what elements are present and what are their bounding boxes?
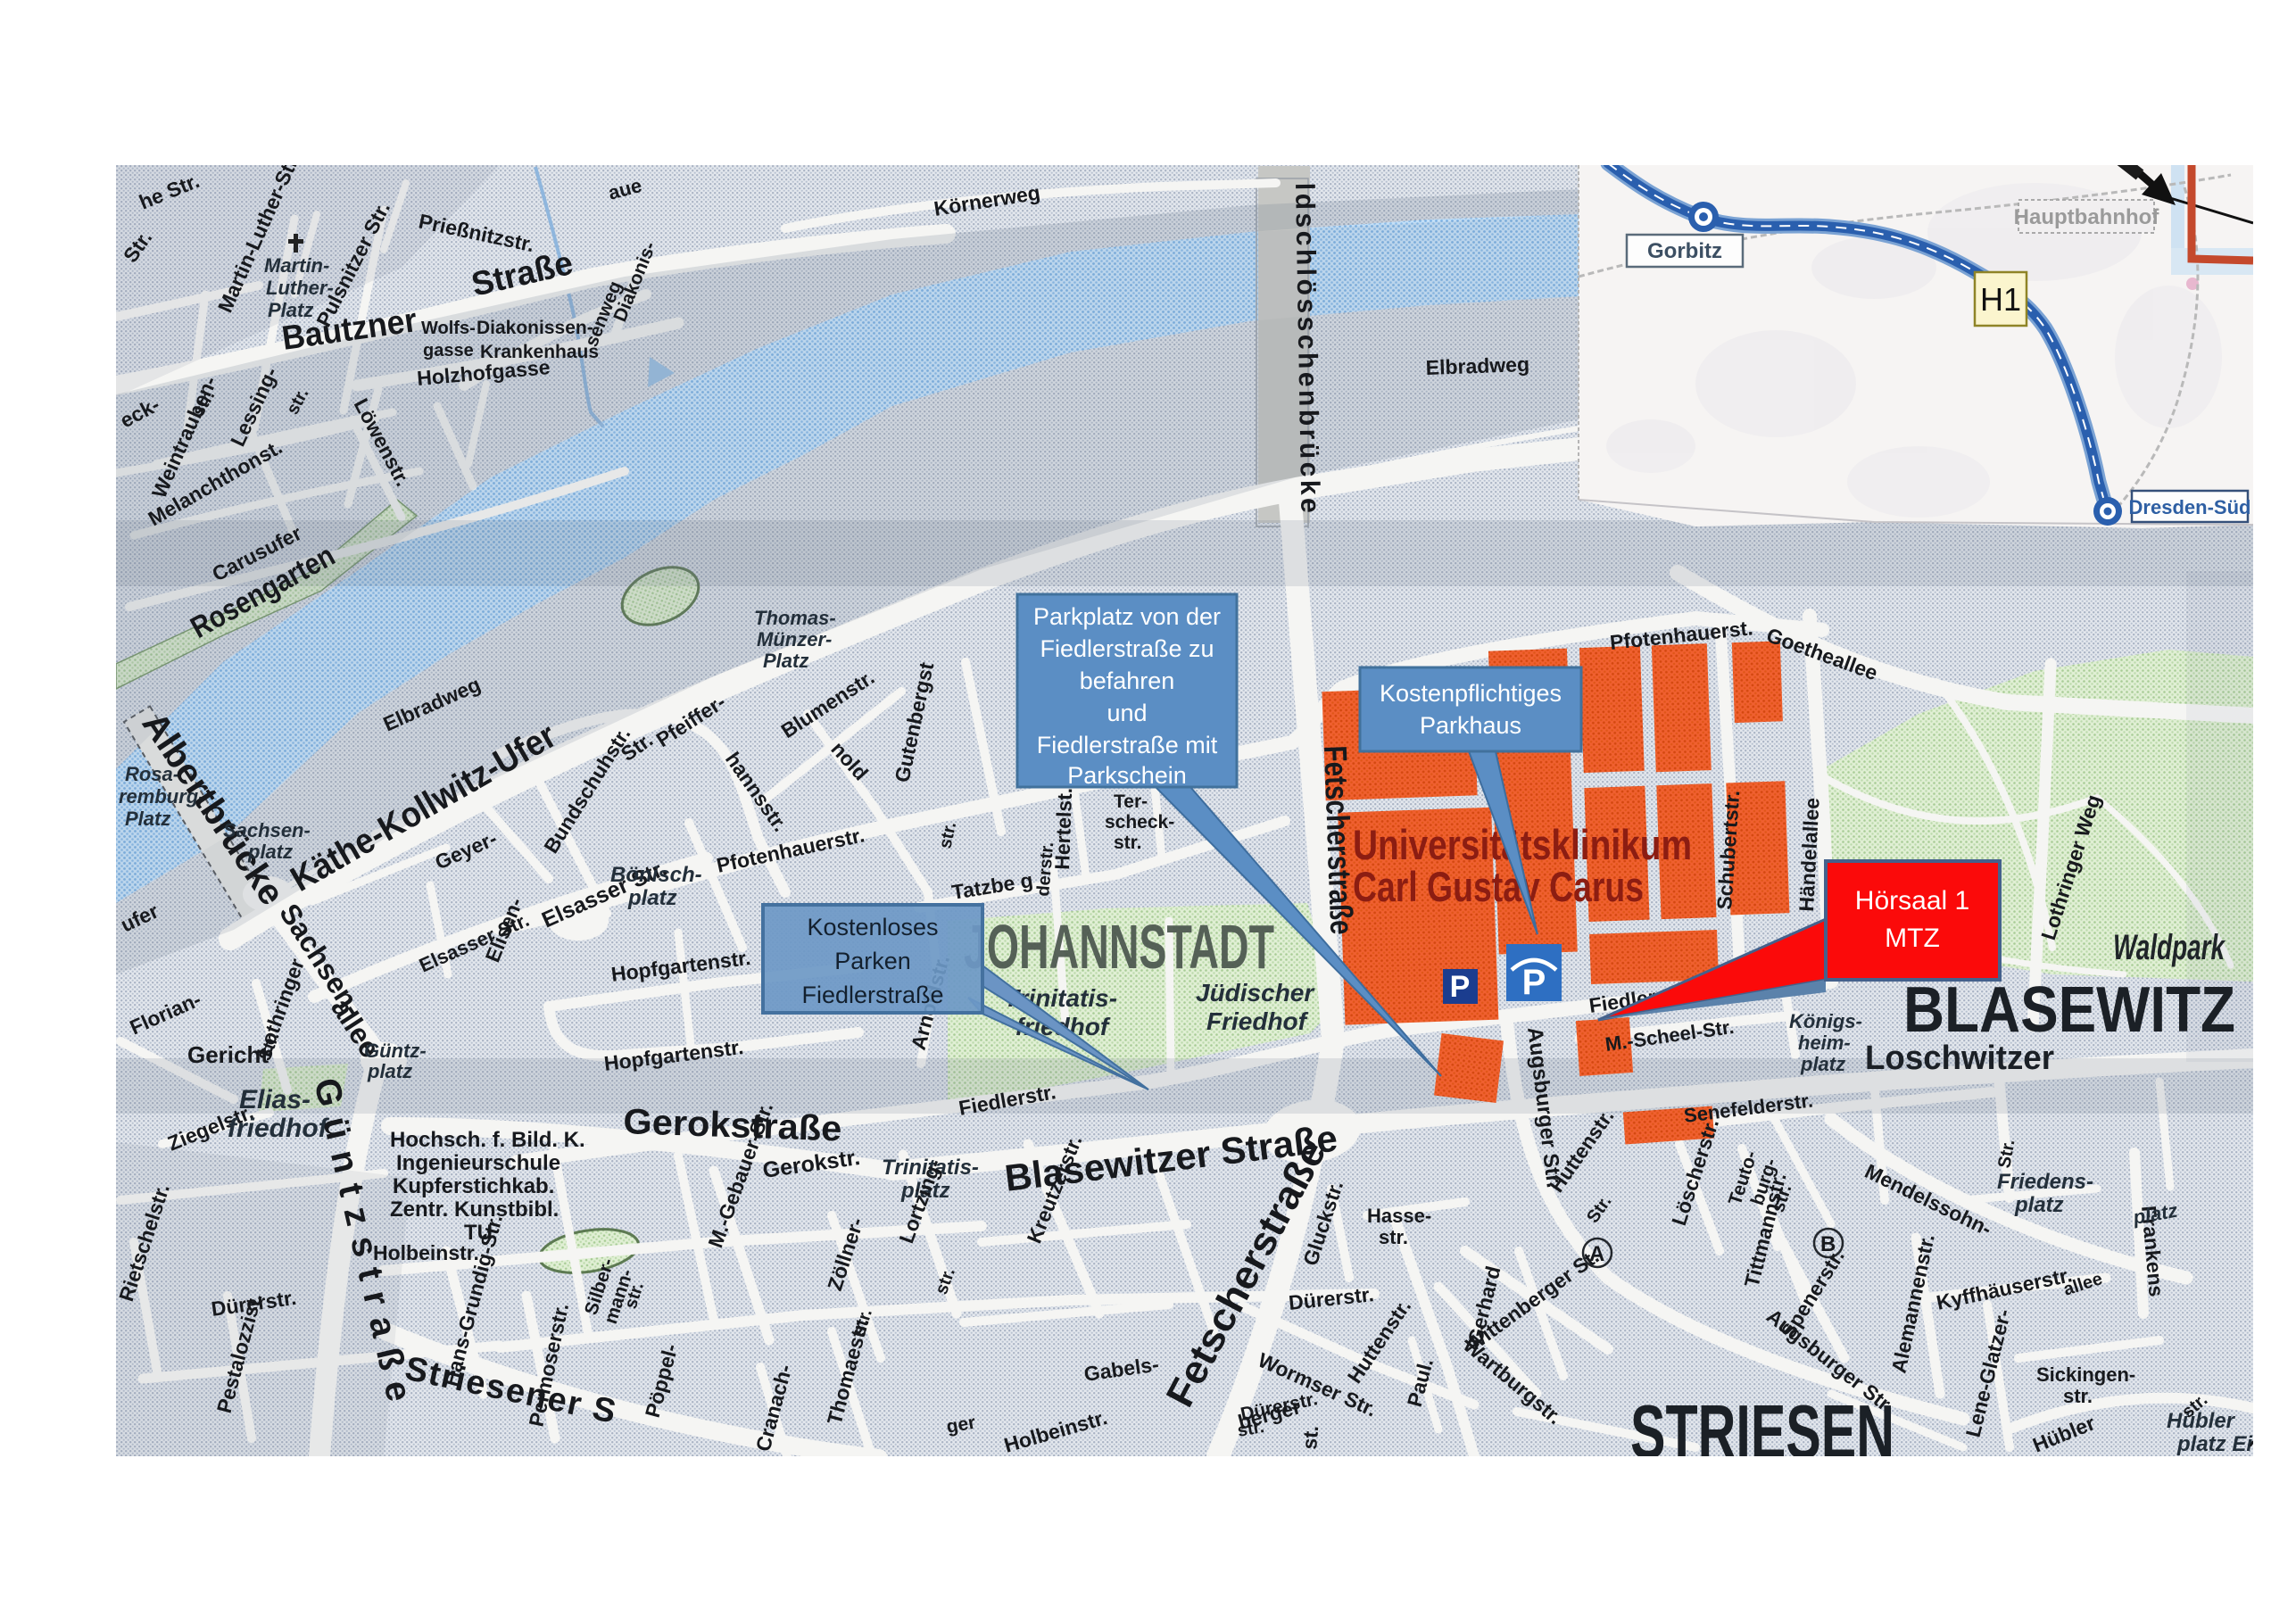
svg-text:Kupferstichkab.: Kupferstichkab. <box>393 1174 554 1198</box>
svg-text:Sickingen-: Sickingen- <box>2036 1363 2135 1386</box>
svg-text:Münzer-: Münzer- <box>757 628 832 650</box>
svg-text:Friedens-: Friedens- <box>1997 1170 2093 1194</box>
svg-text:platz Ei: platz Ei <box>2176 1432 2253 1456</box>
svg-text:Loschwitzer: Loschwitzer <box>1865 1040 2054 1077</box>
svg-text:Güntz-: Güntz- <box>364 1040 427 1062</box>
svg-text:JOHANNSTADT: JOHANNSTADT <box>964 912 1274 982</box>
svg-text:P: P <box>1450 970 1471 1004</box>
svg-text:Hochsch. f. Bild. K.: Hochsch. f. Bild. K. <box>390 1128 585 1152</box>
svg-text:Friedhof: Friedhof <box>1206 1007 1309 1035</box>
svg-text:Königs-: Königs- <box>1789 1010 1862 1032</box>
svg-text:MTZ: MTZ <box>1885 924 1940 953</box>
svg-text:Holbeinstr.: Holbeinstr. <box>373 1241 479 1264</box>
svg-text:gasse: gasse <box>423 341 474 360</box>
svg-text:Elias-: Elias- <box>239 1085 311 1114</box>
svg-text:Fiedlerstraße zu: Fiedlerstraße zu <box>1040 635 1214 662</box>
svg-text:Ter-: Ter- <box>1114 791 1148 812</box>
svg-text:Fiedlerstraße mit: Fiedlerstraße mit <box>1037 732 1218 758</box>
svg-text:str.: str. <box>1379 1226 1408 1248</box>
svg-text:platz: platz <box>1800 1053 1845 1075</box>
svg-text:friedhof: friedhof <box>228 1114 330 1143</box>
svg-text:Hasse-: Hasse- <box>1367 1205 1431 1227</box>
svg-text:Carl Gustav Carus: Carl Gustav Carus <box>1353 863 1644 910</box>
svg-text:Parkschein: Parkschein <box>1067 762 1187 789</box>
svg-text:Elbradweg: Elbradweg <box>1425 352 1529 379</box>
svg-text:Thomas-: Thomas- <box>754 607 836 629</box>
svg-text:P: P <box>1522 963 1546 1002</box>
svg-text:Sachsen-: Sachsen- <box>223 819 311 841</box>
svg-text:st.: st. <box>1297 1424 1322 1450</box>
svg-text:Jüdischer: Jüdischer <box>1196 979 1315 1007</box>
svg-text:befahren: befahren <box>1080 667 1175 694</box>
svg-text:Parkhaus: Parkhaus <box>1420 712 1521 739</box>
svg-text:platz: platz <box>367 1060 412 1082</box>
svg-text:scheck-: scheck- <box>1105 812 1174 833</box>
svg-text:H1: H1 <box>1980 281 2021 318</box>
svg-text:Wolfs-: Wolfs- <box>421 319 476 338</box>
svg-text:platz: platz <box>2014 1193 2064 1217</box>
svg-text:Diakonissen-: Diakonissen- <box>477 318 593 338</box>
svg-text:str.: str. <box>1114 833 1142 853</box>
svg-text:ldschlösschenbrücke: ldschlösschenbrücke <box>1289 183 1324 514</box>
svg-text:Kostenloses: Kostenloses <box>807 914 938 940</box>
svg-text:Zentr. Kunstbibl.: Zentr. Kunstbibl. <box>390 1197 559 1222</box>
svg-text:Universitätsklinikum: Universitätsklinikum <box>1353 821 1692 868</box>
svg-text:Gorbitz: Gorbitz <box>1647 239 1722 263</box>
svg-text:A: A <box>1589 1242 1604 1266</box>
svg-text:Parken: Parken <box>834 948 911 974</box>
svg-text:Platz: Platz <box>763 650 808 672</box>
svg-text:und: und <box>1107 700 1147 726</box>
svg-text:Parkplatz von der: Parkplatz von der <box>1033 603 1221 630</box>
svg-text:Ingenieurschule: Ingenieurschule <box>396 1151 560 1175</box>
svg-text:Fetscherstraße: Fetscherstraße <box>1317 745 1360 935</box>
svg-text:Hörsaal 1: Hörsaal 1 <box>1855 886 1969 916</box>
svg-text:platz: platz <box>247 841 293 863</box>
svg-text:Fiedlerstraße: Fiedlerstraße <box>801 982 943 1008</box>
svg-text:str.: str. <box>2063 1385 2093 1407</box>
svg-text:Hauptbahnhof: Hauptbahnhof <box>2014 205 2160 229</box>
svg-text:platz: platz <box>627 886 677 910</box>
svg-text:Platz: Platz <box>125 808 170 830</box>
svg-text:Bönisch-: Bönisch- <box>610 863 702 887</box>
svg-text:Waldpark: Waldpark <box>2113 928 2226 967</box>
svg-text:Kostenpflichtiges: Kostenpflichtiges <box>1380 680 1562 707</box>
svg-text:heim-: heim- <box>1798 1032 1851 1054</box>
svg-text:Gerokstraße: Gerokstraße <box>623 1102 842 1149</box>
svg-text:Dresden-Süd: Dresden-Süd <box>2129 496 2251 518</box>
svg-text:Martin-: Martin- <box>264 254 329 277</box>
svg-text:BLASEWITZ: BLASEWITZ <box>1903 974 2235 1046</box>
